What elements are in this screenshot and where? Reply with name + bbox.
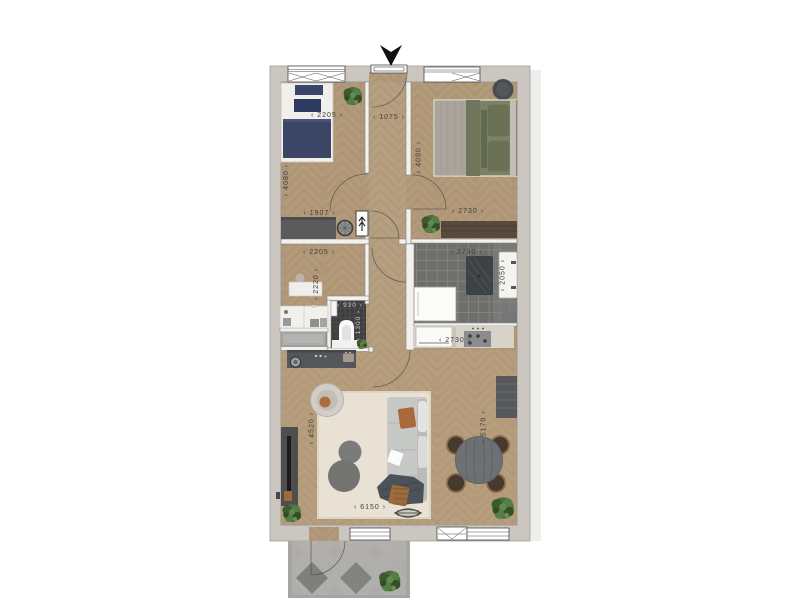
svg-text:‹ 4520 ›: ‹ 4520 › bbox=[309, 412, 316, 444]
svg-text:‹ 2050 ›: ‹ 2050 › bbox=[500, 259, 507, 291]
svg-text:‹ 5170 ›: ‹ 5170 › bbox=[481, 410, 488, 442]
svg-text:‹ 2730 ›: ‹ 2730 › bbox=[439, 337, 471, 344]
svg-text:‹ 4080 ›: ‹ 4080 › bbox=[283, 164, 290, 196]
svg-text:‹ 2730 ›: ‹ 2730 › bbox=[450, 249, 482, 256]
svg-text:‹ 2730 ›: ‹ 2730 › bbox=[452, 208, 484, 215]
svg-text:‹ 1075 ›: ‹ 1075 › bbox=[373, 114, 405, 121]
svg-text:‹ 930 ›: ‹ 930 › bbox=[337, 302, 363, 309]
svg-text:‹ 2205 ›: ‹ 2205 › bbox=[311, 112, 343, 119]
svg-text:‹ 1907 ›: ‹ 1907 › bbox=[303, 210, 335, 217]
svg-text:‹ 2220 ›: ‹ 2220 › bbox=[313, 268, 320, 300]
svg-text:‹ 4080 ›: ‹ 4080 › bbox=[416, 141, 423, 173]
svg-text:‹ 1300 ›: ‹ 1300 › bbox=[355, 310, 362, 340]
svg-text:‹ 6150 ›: ‹ 6150 › bbox=[354, 504, 386, 511]
svg-text:‹ 2205 ›: ‹ 2205 › bbox=[303, 249, 335, 256]
